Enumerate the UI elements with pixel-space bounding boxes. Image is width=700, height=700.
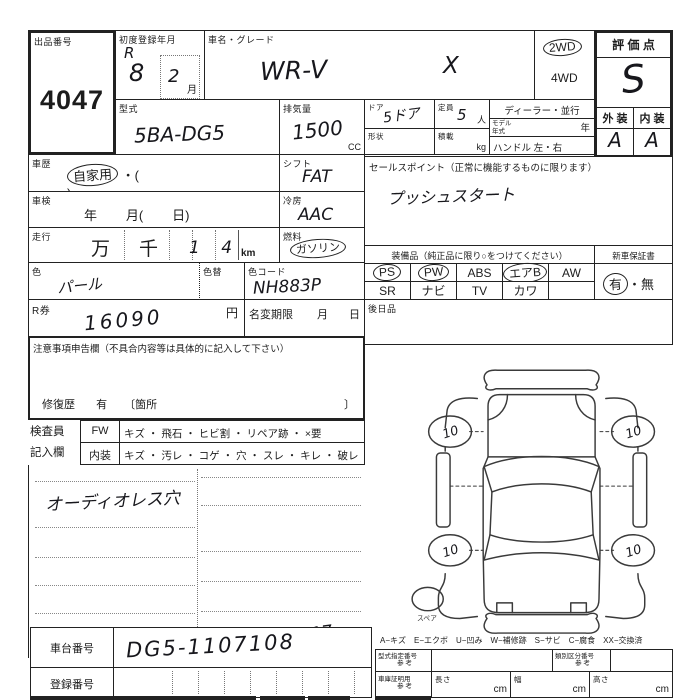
warranty-header: 新車保証書 <box>594 245 673 264</box>
history-label: 車歴 <box>32 157 51 170</box>
mileage-label: 走行 <box>32 230 51 243</box>
later-items-cell: 後日品 <box>364 299 673 345</box>
width-cell: 幅 cm <box>510 671 590 698</box>
inspection-label: 車検 <box>32 194 51 207</box>
doors-cell: ドア 5ドア <box>364 99 435 129</box>
partial-row-box-2 <box>260 696 305 700</box>
inspector-label-2: 記入欄 <box>30 443 80 464</box>
model-year-unit: 年 <box>580 120 590 134</box>
spare-tire-label: スペア <box>417 614 437 622</box>
score-box: 評 価 点 S 外 装 内 装 A A <box>594 30 673 158</box>
handle-label: ハンドル 左・右 <box>490 137 594 154</box>
lot-number-label: 出品番号 <box>34 35 72 48</box>
damage-legend: A−キズ E−エクボ U−凹み W−補修跡 S−サビ C−腐食 XX−交換済 <box>380 635 673 646</box>
recycle-ticket-cell: R券 16090 円 <box>28 299 245 337</box>
model-year-cell: モデル 年式 年 <box>489 118 595 137</box>
interior-label: 内 装 <box>634 108 670 128</box>
equip-navi: ナビ <box>410 281 457 300</box>
repair-history-yes: 有 <box>96 399 107 411</box>
color-change-label: 色替 <box>203 265 222 278</box>
sales-point-label: セールスポイント（正常に機能するものに限ります） <box>365 157 672 174</box>
wheel-mark-front-left: 10 <box>440 422 460 441</box>
class-number-value-cell <box>610 649 673 672</box>
equip-abs: ABS <box>456 263 503 282</box>
inspector-label-1: 検査員 <box>30 422 80 443</box>
recycle-ticket-label: R券 <box>32 302 50 317</box>
color-value: パール <box>56 273 103 299</box>
load-label: 積載 <box>438 131 454 142</box>
displacement-unit: CC <box>348 142 361 152</box>
equip-pw-circled: PW <box>417 263 449 282</box>
drive-type-cell: 2WD 4WD <box>534 30 595 100</box>
model-year-label2: 年式 <box>492 128 505 135</box>
fuel-gasoline-circled: ガソリン <box>289 237 346 260</box>
inspector-outer-label: 検査員 記入欄 <box>30 422 80 466</box>
inspector-cell-fw: FW <box>80 420 120 443</box>
color-code-value: NH883P <box>253 275 322 299</box>
history-cell: 車歴 自家用 ・( ) <box>28 154 280 192</box>
inspector-cell-interior: 内装 <box>80 442 120 465</box>
name-change-label: 名変期限 <box>249 306 293 322</box>
inspection-value: 年 月( 日) <box>84 205 189 224</box>
warranty-no: 無 <box>641 277 654 292</box>
exterior-label: 外 装 <box>597 108 634 128</box>
equip-pw: PW <box>410 263 457 282</box>
capacity-cell: 定員 5 人 <box>434 99 490 129</box>
load-unit: kg <box>476 142 486 152</box>
partial-row-box-3 <box>308 696 350 700</box>
length-cell: 長さ cm <box>431 671 511 698</box>
exterior-score: A <box>597 128 634 155</box>
car-grade: X <box>443 53 459 79</box>
doors-value: 5ドア <box>382 103 421 128</box>
equip-airbag: エアB <box>502 263 549 282</box>
equip-tv: TV <box>456 281 503 300</box>
month-handwritten: 2 <box>168 66 179 87</box>
car-name-cell: 車名・グレード WR-V X <box>204 30 535 100</box>
chassis-number: DG5-1107108 <box>125 630 295 663</box>
height-cell: 高さ cm <box>589 671 673 698</box>
chassis-label-cell: 車台番号 <box>30 627 114 668</box>
sales-point-value: プッシュスタート <box>387 181 516 209</box>
lot-number-cell: 出品番号 4047 <box>28 30 116 155</box>
equip-ps-circled: PS <box>373 263 402 282</box>
partial-row-box-4 <box>375 696 431 700</box>
equip-sr: SR <box>364 281 411 300</box>
shape-label: 形状 <box>368 131 384 142</box>
equip-empty <box>548 281 595 300</box>
score-value: S <box>595 53 673 108</box>
caution-box: 注意事項申告欄（不具合内容等は具体的に記入して下さい） 修復歴 有 〔箇所 〕 <box>28 336 365 420</box>
mileage-man: 万 <box>91 234 110 261</box>
dealer-label: ディーラー・並行 <box>490 100 594 117</box>
type-number-label-cell: 型式指定番号 参 考 <box>375 649 432 672</box>
car-damage-diagram: 10 10 10 10 スペア <box>378 344 673 636</box>
chassis-value-cell: DG5-1107108 <box>113 627 372 668</box>
registration-label-cell: 登録番号 <box>30 667 114 698</box>
warranty-cell: 有・無 <box>594 263 673 300</box>
displacement-value: 1500 <box>291 115 344 144</box>
wheel-mark-rear-left: 10 <box>440 541 460 560</box>
month-box: 2 月 <box>160 55 200 99</box>
displacement-cell: 排気量 1500 CC <box>279 99 365 155</box>
equipment-label: 装備品（純正品に限り○をつけてください） <box>365 246 594 262</box>
shape-cell: 形状 <box>364 128 435 155</box>
mileage-cell: 走行 万 千 1 4 km <box>28 227 280 263</box>
mileage-sen: 千 <box>139 234 158 261</box>
drive-4wd: 4WD <box>551 71 578 85</box>
dealer-cell: ディーラー・並行 <box>489 99 595 119</box>
inspector-items-interior: キズ ・ 汚レ ・ コゲ ・ 穴 ・ スレ ・ キレ ・ 破レ <box>119 442 365 465</box>
history-value-circled: 自家用 <box>66 162 118 188</box>
mileage-unit: km <box>241 248 255 259</box>
notes-handwritten: オーディオレス穴 <box>44 483 180 515</box>
car-name-label: 車名・グレード <box>208 33 275 46</box>
displacement-label: 排気量 <box>283 102 312 115</box>
wheel-mark-rear-right: 10 <box>623 541 643 560</box>
name-change-cell: 名変期限 月 日 <box>244 299 365 337</box>
capacity-label: 定員 <box>438 102 454 113</box>
type-number-value-cell <box>431 649 553 672</box>
repair-location-open: 〔箇所 <box>124 399 157 411</box>
later-items-label: 後日品 <box>368 302 397 315</box>
wheel-mark-front-right: 10 <box>623 422 643 441</box>
year-handwritten: 8 <box>129 59 144 87</box>
color-code-cell: 色コード NH883P <box>244 262 365 300</box>
auction-sheet: 出品番号 4047 初度登録年月 R 8 2 月 車名・グレード WR-V X … <box>28 30 673 700</box>
registration-value-cell <box>113 667 372 698</box>
caution-label: 注意事項申告欄（不具合内容等は具体的に記入して下さい） <box>30 338 363 355</box>
color-change-cell: 色替 <box>199 262 245 300</box>
inspector-items-fw: キズ ・ 飛石 ・ ヒビ割 ・ リペア跡 ・ ×要 <box>119 420 365 443</box>
drive-2wd: 2WD <box>543 39 582 56</box>
lot-number: 4047 <box>31 85 113 116</box>
mileage-value: 1 4 <box>189 238 240 258</box>
load-cell: 積載 kg <box>434 128 490 155</box>
model-year-label1: モデル <box>492 120 512 127</box>
color-cell: 色 パール <box>28 262 200 300</box>
model-code-cell: 型式 5BA-DG5 <box>115 99 280 155</box>
equip-aw: AW <box>548 263 595 282</box>
equip-ps: PS <box>364 263 411 282</box>
color-label: 色 <box>32 265 42 278</box>
car-name: WR-V <box>260 55 328 86</box>
handle-cell: ハンドル 左・右 <box>489 136 595 155</box>
partial-row-box-1 <box>30 696 256 700</box>
shift-cell: シフト FAT <box>279 154 365 192</box>
recycle-ticket-unit: 円 <box>226 304 238 321</box>
model-code-label: 型式 <box>119 102 138 115</box>
color-code-label: 色コード <box>248 265 286 278</box>
equip-kawa: カワ <box>502 281 549 300</box>
ac-cell: 冷房 AAC <box>279 191 365 228</box>
interior-score: A <box>634 128 670 155</box>
warranty-label: 新車保証書 <box>595 246 672 262</box>
shift-value: FAT <box>302 167 332 187</box>
sales-point-cell: セールスポイント（正常に機能するものに限ります） プッシュスタート <box>364 156 673 246</box>
repair-history-label: 修復歴 <box>42 399 75 411</box>
capacity-unit: 人 <box>477 113 486 126</box>
repair-location-close: 〕 <box>344 396 355 412</box>
garage-label-cell: 車庫証明用 参 考 <box>375 671 432 698</box>
warranty-yes-circled: 有 <box>602 272 628 296</box>
recycle-ticket-value: 16090 <box>83 305 163 336</box>
capacity-value: 5 <box>457 106 467 124</box>
drive-2wd-circled: 2WD <box>542 38 582 58</box>
name-change-day: 日 <box>349 306 360 322</box>
model-code: 5BA-DG5 <box>134 120 226 147</box>
month-unit: 月 <box>187 81 197 96</box>
history-paren-open: ・( <box>122 168 139 183</box>
inspection-cell: 車検 年 月( 日) <box>28 191 280 228</box>
class-number-label-cell: 類別区分番号 参 考 <box>552 649 611 672</box>
name-change-month: 月 <box>317 306 328 322</box>
first-registration-cell: 初度登録年月 R 8 2 月 <box>115 30 205 100</box>
ac-value: AAC <box>298 205 333 225</box>
equipment-header: 装備品（純正品に限り○をつけてください） <box>364 245 595 264</box>
